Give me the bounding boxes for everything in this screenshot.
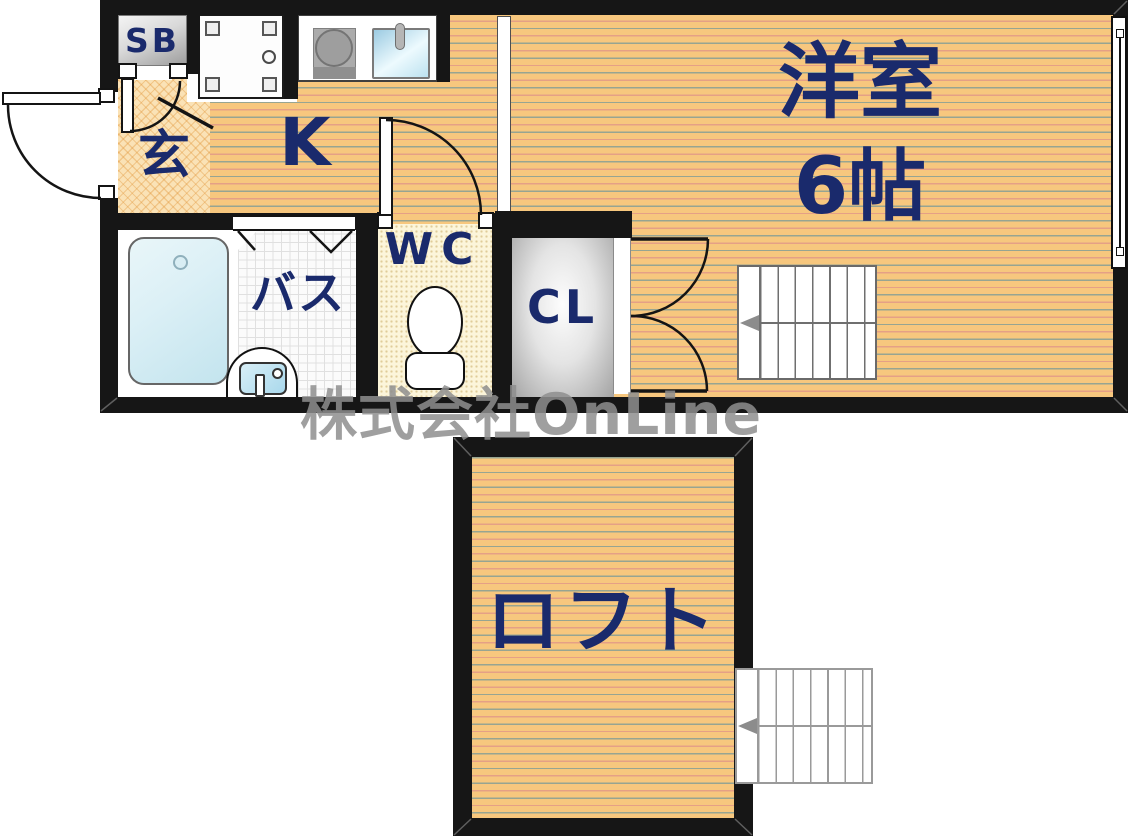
entrance-label: 玄 <box>118 130 210 182</box>
corner-miter <box>735 819 752 835</box>
bath-corner-line <box>238 231 255 250</box>
entrance-door-arc <box>8 105 101 198</box>
watermark-text: 株式会社OnLine <box>300 387 762 444</box>
western-room-label: 洋室 <box>740 42 980 124</box>
bath-folding-door-mark <box>310 231 352 252</box>
corner-miter <box>101 398 117 411</box>
closet-label: CL <box>511 284 614 330</box>
floor-plan-image: SB <box>0 0 1130 836</box>
kitchen-label: K <box>255 110 355 176</box>
wc-door-arc <box>386 120 481 215</box>
entrance-step-edge <box>158 98 213 128</box>
closet-door-top-arc <box>631 239 708 316</box>
western-room-size-label: 6帖 <box>740 148 980 226</box>
bath-label: バス <box>240 270 356 316</box>
toilet-label: WC <box>374 228 492 272</box>
loft-label: ロフト <box>472 584 734 658</box>
corner-miter <box>454 819 471 835</box>
corner-miter <box>1114 398 1127 411</box>
corner-miter <box>1114 1 1127 14</box>
closet-door-bottom-arc <box>631 316 707 391</box>
